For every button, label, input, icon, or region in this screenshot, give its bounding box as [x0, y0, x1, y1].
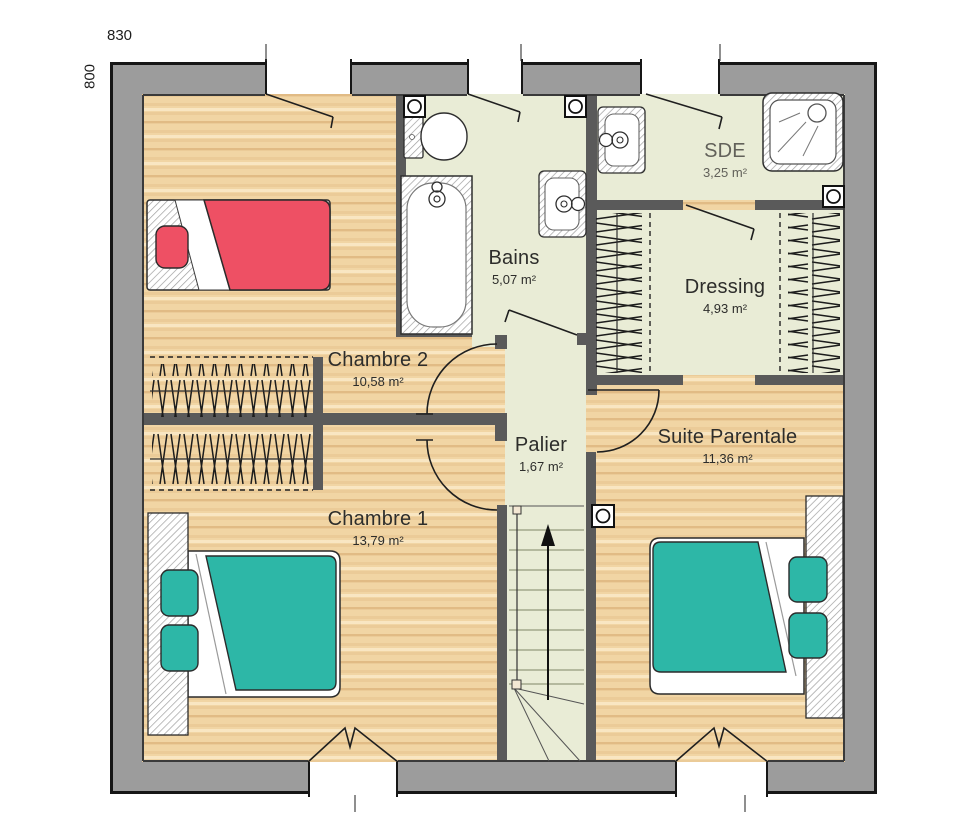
interior-wall — [396, 94, 406, 337]
room-area: 13,79 m² — [288, 533, 468, 548]
interior-wall — [396, 328, 472, 337]
room-area: 3,25 m² — [665, 165, 785, 180]
interior-wall — [755, 375, 845, 385]
room-label-chambre2: Chambre 2 10,58 m² — [288, 349, 468, 389]
interior-wall — [313, 425, 323, 490]
interior-wall — [142, 413, 497, 425]
interior-wall — [586, 375, 683, 385]
room-label-dressing: Dressing 4,93 m² — [635, 276, 815, 316]
window-opening — [467, 59, 523, 94]
floor-plan: 830 800 — [0, 0, 960, 830]
window-opening — [640, 59, 720, 94]
room-area: 11,36 m² — [625, 451, 830, 466]
interior-wall — [577, 333, 586, 345]
room-area: 5,07 m² — [454, 272, 574, 287]
room-label-suite-parentale: Suite Parentale 11,36 m² — [625, 426, 830, 466]
room-name: Chambre 2 — [288, 349, 468, 372]
room-label-bains: Bains 5,07 m² — [454, 247, 574, 287]
room-area: 4,93 m² — [635, 301, 815, 316]
dimension-height-label: 800 — [82, 57, 99, 97]
room-name: Palier — [481, 434, 601, 457]
window-opening — [265, 59, 352, 94]
room-name: Suite Parentale — [625, 426, 830, 449]
interior-wall — [755, 200, 845, 210]
window-opening — [308, 762, 398, 797]
room-label-chambre1: Chambre 1 13,79 m² — [288, 508, 468, 548]
room-name: SDE — [665, 140, 785, 163]
room-label-sde: SDE 3,25 m² — [665, 140, 785, 180]
interior-wall — [497, 505, 507, 762]
interior-wall — [586, 452, 596, 762]
interior-wall — [495, 335, 507, 349]
room-area: 1,67 m² — [481, 459, 601, 474]
room-label-palier: Palier 1,67 m² — [481, 434, 601, 474]
room-name: Dressing — [635, 276, 815, 299]
dimension-width-label: 830 — [107, 27, 132, 44]
bains-floor — [406, 94, 586, 337]
threshold-patch — [472, 328, 495, 347]
room-area: 10,58 m² — [288, 374, 468, 389]
window-opening — [675, 762, 768, 797]
room-name: Bains — [454, 247, 574, 270]
palier-stairs-floor — [505, 337, 586, 762]
interior-wall — [586, 200, 683, 210]
room-name: Chambre 1 — [288, 508, 468, 531]
interior-wall — [586, 94, 597, 395]
